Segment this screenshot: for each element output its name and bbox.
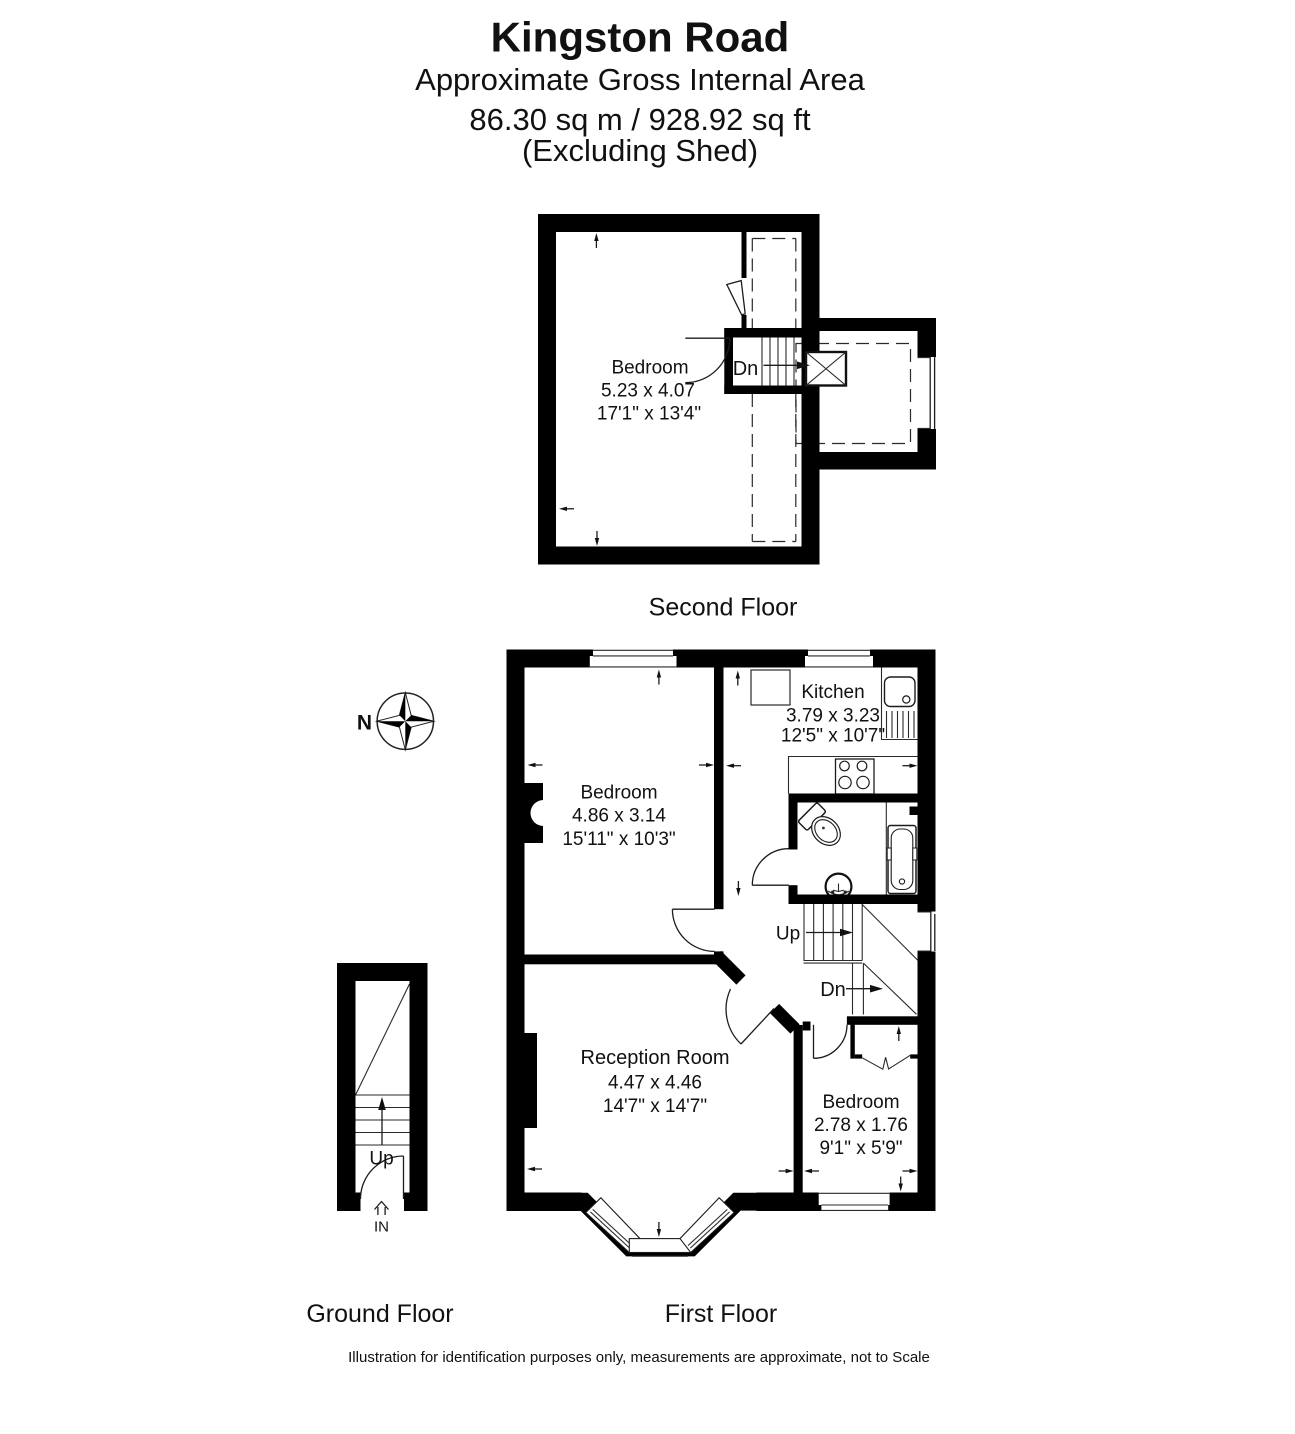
svg-text:Dn: Dn (733, 358, 759, 380)
svg-text:5.23 x 4.07: 5.23 x 4.07 (601, 380, 695, 401)
svg-text:Bedroom: Bedroom (580, 782, 657, 803)
svg-text:Ground Floor: Ground Floor (306, 1300, 453, 1328)
svg-text:N: N (357, 712, 372, 735)
svg-text:(Excluding Shed): (Excluding Shed) (522, 133, 758, 168)
svg-text:9'1" x 5'9": 9'1" x 5'9" (819, 1138, 902, 1159)
svg-text:3.79 x 3.23: 3.79 x 3.23 (786, 706, 880, 727)
svg-text:Second Floor: Second Floor (649, 594, 798, 622)
svg-text:2.78 x 1.76: 2.78 x 1.76 (814, 1115, 908, 1136)
svg-text:4.47 x 4.46: 4.47 x 4.46 (608, 1073, 702, 1094)
svg-text:17'1" x 13'4": 17'1" x 13'4" (597, 403, 701, 424)
svg-text:Up: Up (776, 924, 800, 945)
svg-text:Bedroom: Bedroom (611, 357, 688, 378)
svg-text:First Floor: First Floor (665, 1300, 778, 1328)
svg-text:4.86 x 3.14: 4.86 x 3.14 (572, 806, 666, 827)
svg-text:Kitchen: Kitchen (801, 682, 864, 703)
svg-text:Up: Up (369, 1149, 393, 1170)
svg-text:IN: IN (374, 1219, 389, 1236)
svg-text:Bedroom: Bedroom (822, 1092, 899, 1113)
svg-text:15'11" x 10'3": 15'11" x 10'3" (562, 829, 675, 850)
svg-text:Dn: Dn (820, 979, 846, 1001)
svg-text:Kingston Road: Kingston Road (491, 14, 790, 61)
svg-text:12'5" x 10'7": 12'5" x 10'7" (781, 726, 885, 747)
svg-text:Reception Room: Reception Room (581, 1047, 730, 1069)
svg-text:14'7" x 14'7": 14'7" x 14'7" (603, 1096, 707, 1117)
svg-text:Approximate Gross Internal Are: Approximate Gross Internal Area (415, 62, 865, 97)
svg-text:Illustration for identificatio: Illustration for identification purposes… (348, 1349, 930, 1366)
svg-text:86.30 sq m / 928.92 sq ft: 86.30 sq m / 928.92 sq ft (469, 102, 811, 137)
